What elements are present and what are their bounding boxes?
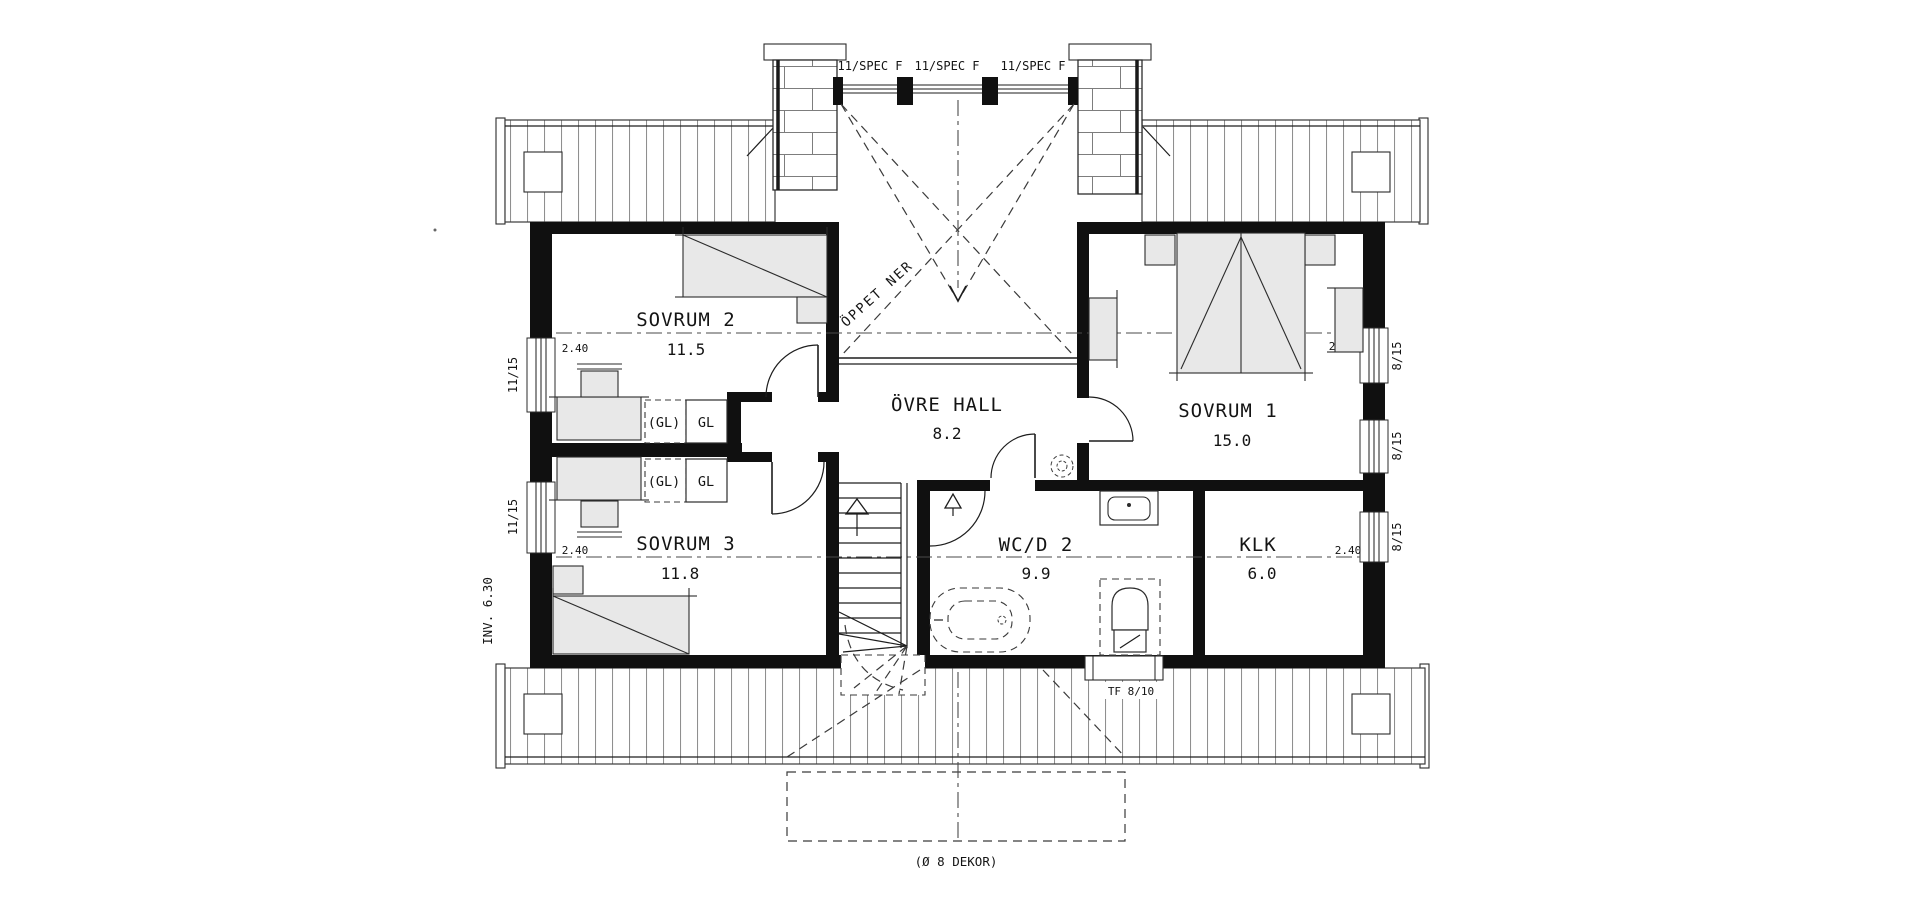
exterior-wall-right — [1363, 473, 1385, 512]
wall-stub — [741, 452, 772, 462]
desk — [557, 457, 641, 500]
bottom-window: TF 8/10 — [1085, 656, 1168, 699]
window-label-8-15: 8/15 — [1390, 432, 1404, 461]
shower-screen-arc — [930, 491, 985, 546]
exterior-wall-right — [1363, 562, 1385, 668]
shower-icon — [945, 494, 961, 508]
gable-windows: 11/SPEC F 11/SPEC F 11/SPEC F — [833, 59, 1078, 105]
bathtub-inner — [948, 601, 1012, 639]
eave-end-cap — [496, 118, 505, 224]
exterior-wall-left — [530, 222, 552, 338]
window-mullion — [833, 77, 843, 105]
floor-plan-page: 11/SPEC F 11/SPEC F 11/SPEC F 11/ — [0, 0, 1920, 900]
wall-wc-north — [1035, 480, 1363, 491]
roof-hatch-box — [1352, 152, 1390, 192]
window-label-8-15: 8/15 — [1390, 342, 1404, 371]
down-arrow-icon — [950, 286, 966, 301]
exterior-wall-right — [1363, 222, 1385, 328]
window-mullion — [982, 77, 998, 105]
roof-hatch-box — [524, 694, 562, 734]
eave-end-cap — [496, 664, 505, 768]
open-below-label: ÖPPET NER — [837, 256, 917, 330]
floor-plan-drawing: 11/SPEC F 11/SPEC F 11/SPEC F 11/ — [0, 0, 1920, 900]
vent-icon — [1051, 455, 1073, 477]
room-area-sovrum2: 11.5 — [667, 340, 706, 359]
chimney-body — [1078, 60, 1142, 194]
stair-treads — [839, 483, 901, 633]
stair-winder — [839, 612, 907, 646]
window-label-spec-2: 11/SPEC F — [914, 59, 979, 73]
desk — [557, 397, 641, 440]
wall-klk-west — [1193, 491, 1205, 655]
nightstand — [1305, 235, 1335, 265]
chair — [581, 501, 618, 527]
bathtub-drain — [998, 616, 1006, 624]
exterior-wall-left — [530, 412, 552, 482]
chimney-left — [764, 44, 846, 190]
chimney-right — [1069, 44, 1151, 194]
room-name-klk: KLK — [1239, 534, 1276, 556]
window-label-tf: TF 8/10 — [1108, 685, 1154, 698]
room-area-sovrum3: 11.8 — [661, 564, 700, 583]
nightstand — [553, 566, 583, 594]
room-name-sovrum1: SOVRUM 1 — [1178, 400, 1278, 422]
stairs — [839, 483, 925, 695]
inner-height-label: INV. 6.30 — [480, 577, 495, 645]
height-2-40: 2.40 — [562, 544, 589, 557]
door-arc-sovrum3 — [772, 462, 824, 514]
door-arc-sovrum1 — [1089, 397, 1133, 441]
room-area-wcd2: 9.9 — [1022, 564, 1051, 583]
window-right-1: 8/15 — [1360, 328, 1404, 383]
wall-closet — [727, 392, 741, 462]
window-label-spec-1: 11/SPEC F — [837, 59, 902, 73]
window-label-8-15: 8/15 — [1390, 523, 1404, 552]
dresser — [1089, 298, 1117, 360]
vent-icon-inner — [1057, 461, 1067, 471]
chimney-cap — [1069, 44, 1151, 60]
wall-hall-west — [826, 233, 839, 392]
room-name-wcd2: WC/D 2 — [999, 534, 1074, 556]
window-right-2: 8/15 — [1360, 420, 1404, 473]
wall-sovrum1-west — [1077, 234, 1089, 398]
door-arc-sovrum2 — [766, 345, 818, 397]
room-name-hall: ÖVRE HALL — [891, 393, 1003, 416]
roof-hatch-box — [524, 152, 562, 192]
nightstand — [1145, 235, 1175, 265]
roof-hatch-box — [1352, 694, 1390, 734]
wall-stub — [818, 452, 839, 462]
room-area-klk: 6.0 — [1248, 564, 1277, 583]
furniture-sovrum1 — [1089, 233, 1363, 381]
wall-bedroom-divider — [552, 443, 742, 457]
room-area-hall: 8.2 — [933, 424, 962, 443]
wall-stub — [741, 392, 772, 402]
window-label-11-15: 11/15 — [506, 499, 520, 535]
closet-label-gl: GL — [698, 474, 714, 490]
window-tf — [1085, 656, 1163, 680]
stair-continuation — [841, 655, 925, 695]
chimney-body — [773, 60, 837, 190]
decor-dashed-box — [787, 772, 1125, 841]
exterior-wall-left — [530, 553, 552, 668]
exterior-wall-right — [1363, 383, 1385, 420]
sink-basin — [1108, 497, 1150, 520]
window-mullion — [1068, 77, 1078, 105]
reference-dot — [434, 229, 437, 232]
stair-winder — [843, 646, 907, 652]
window-left-1: 11/15 — [506, 338, 555, 412]
wall-stair-west — [826, 462, 839, 655]
window-label-spec-3: 11/SPEC F — [1000, 59, 1065, 73]
toilet-icon — [1112, 588, 1148, 630]
stair-up-arrow-icon — [846, 499, 868, 514]
wall-stair-east — [917, 491, 930, 655]
chair — [581, 371, 618, 397]
decor-label: (Ø 8 DEKOR) — [915, 854, 998, 869]
room-name-sovrum2: SOVRUM 2 — [636, 309, 736, 331]
height-2-40: 2.40 — [562, 342, 589, 355]
door-arc-wc — [991, 434, 1035, 478]
open-to-below: ÖPPET NER — [837, 100, 1077, 364]
exterior-wall-top-left — [530, 222, 839, 234]
exterior-wall-bottom — [530, 655, 1385, 668]
wall-stub — [818, 392, 839, 402]
room-area-sovrum1: 15.0 — [1213, 431, 1252, 450]
exterior-wall-top-right — [1077, 222, 1385, 234]
roof-band-bottom — [505, 668, 1425, 764]
window-left-2: 11/15 — [506, 482, 555, 553]
sink-faucet — [1127, 503, 1131, 507]
room-name-sovrum3: SOVRUM 3 — [636, 533, 736, 555]
chimney-cap — [764, 44, 846, 60]
window-label-11-15: 11/15 — [506, 357, 520, 393]
window-right-3: 8/15 — [1360, 512, 1404, 562]
closet-label-gl-dashed: (GL) — [648, 474, 681, 490]
closet-label-gl-dashed: (GL) — [648, 415, 681, 431]
closet-label-gl: GL — [698, 415, 714, 431]
bathtub-icon — [930, 588, 1030, 652]
wall-wc-north — [917, 480, 990, 491]
height-2-40: 2.40 — [1335, 544, 1362, 557]
window-mullion — [897, 77, 913, 105]
roof-valley-dashed-line — [961, 104, 1074, 296]
dresser — [1335, 288, 1363, 352]
nightstand — [797, 297, 827, 323]
